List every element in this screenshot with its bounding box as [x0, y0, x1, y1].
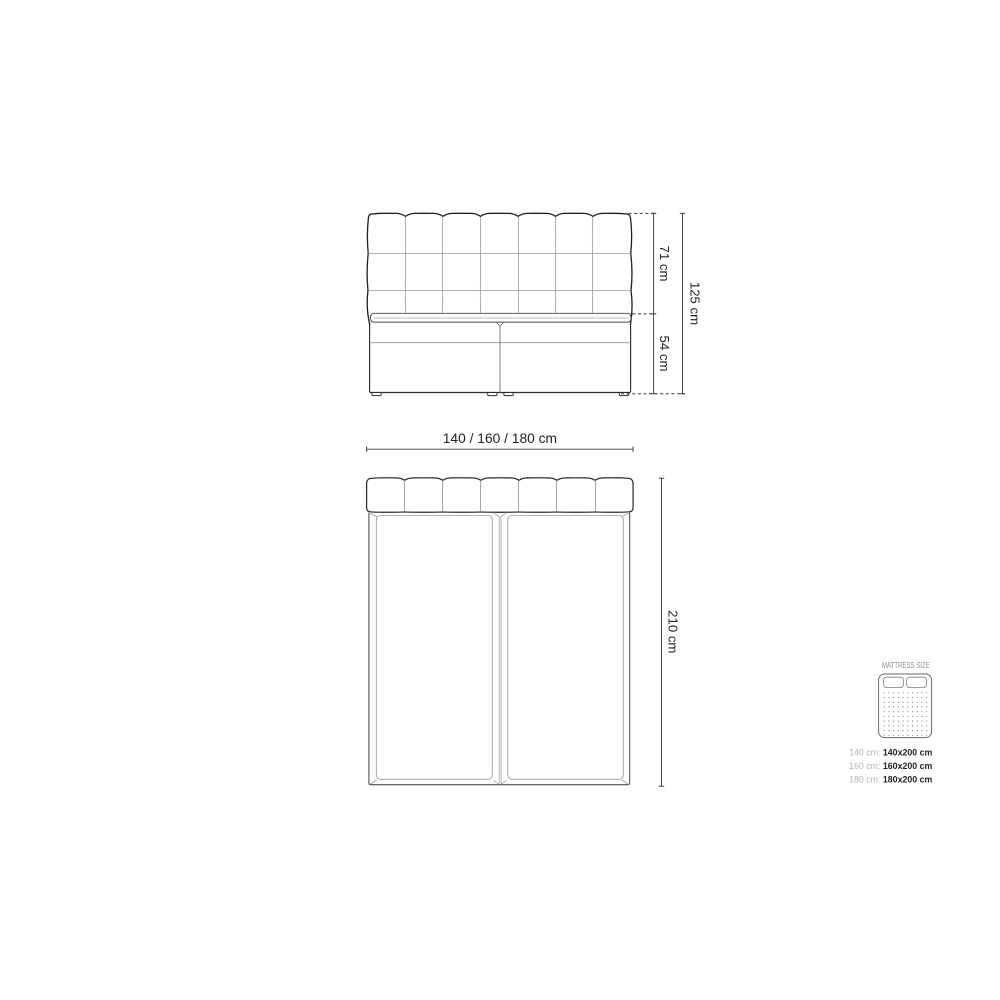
svg-text:180 cm: 180x200 cm: 180 cm: 180x200 cm — [849, 774, 932, 784]
svg-text:54 cm: 54 cm — [657, 336, 672, 372]
svg-text:210 cm: 210 cm — [666, 610, 681, 653]
svg-text:140 / 160 / 180 cm: 140 / 160 / 180 cm — [443, 431, 557, 446]
svg-text:MATTRESS SIZE: MATTRESS SIZE — [882, 660, 930, 670]
svg-text:140 cm: 140x200 cm: 140 cm: 140x200 cm — [849, 748, 932, 758]
svg-text:71 cm: 71 cm — [657, 246, 672, 282]
svg-text:160 cm: 160x200 cm: 160 cm: 160x200 cm — [849, 761, 932, 771]
svg-text:125 cm: 125 cm — [688, 282, 703, 325]
